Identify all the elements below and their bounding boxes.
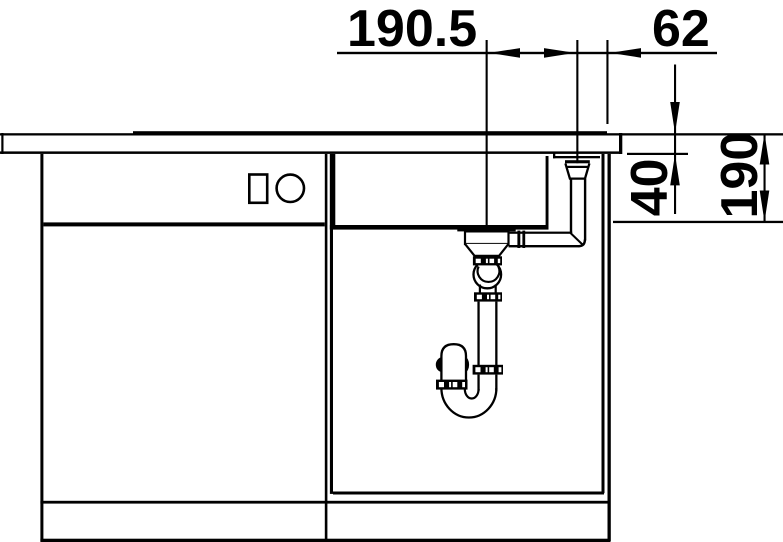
svg-text:62: 62 — [652, 0, 710, 58]
svg-text:190.5: 190.5 — [347, 0, 477, 58]
svg-text:190: 190 — [711, 132, 769, 219]
svg-text:40: 40 — [621, 158, 679, 216]
